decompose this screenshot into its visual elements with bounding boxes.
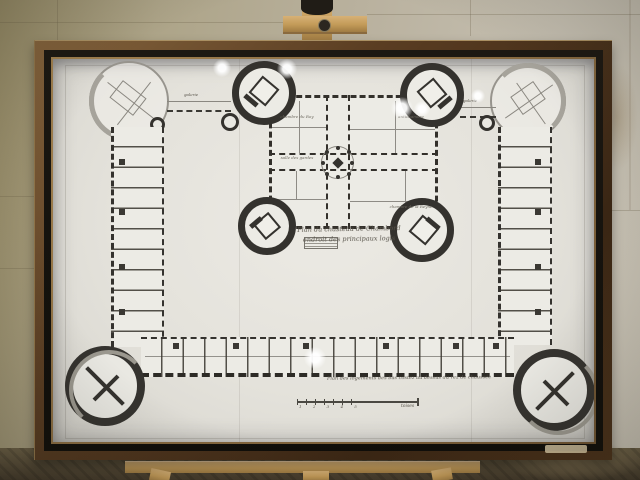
picture-frame: galerie galerie — [34, 40, 612, 460]
chimney-block — [119, 309, 125, 315]
chimney-block — [535, 209, 541, 215]
stair-column — [325, 150, 329, 154]
stair-core — [332, 157, 343, 168]
plan-tower-bottomright — [513, 349, 594, 431]
chimney-block — [535, 159, 541, 165]
keep-partition — [296, 171, 297, 199]
chimney-block — [173, 343, 179, 349]
plan-tower-bottomleft — [65, 346, 145, 426]
scale-label: toises — [401, 404, 414, 409]
wall-mortar-joint — [367, 14, 640, 15]
glass-glare — [471, 89, 485, 103]
tower-shading-arc — [517, 353, 594, 435]
frame-inner-black-band: galerie galerie — [44, 50, 603, 451]
photo-scene: galerie galerie — [0, 0, 640, 480]
stair-column — [336, 175, 340, 179]
caption-center-line2: endroit des principaux logis — [289, 234, 409, 246]
wall-mortar-joint — [0, 268, 34, 269]
keep-partition — [350, 129, 435, 130]
plan-central-stair — [321, 146, 354, 179]
frame-damage-patch — [545, 445, 587, 453]
caption-center: Plan du chasteau de Chambord endroit des… — [289, 224, 409, 246]
chimney-block — [535, 309, 541, 315]
scale-end-tick — [417, 398, 419, 406]
gallery-label-left: galerie — [184, 92, 198, 97]
chimney-block — [383, 343, 389, 349]
glass-glare — [391, 97, 413, 119]
paper-crease — [239, 59, 240, 442]
wall-mortar-joint — [0, 22, 283, 23]
south-wing-inner-line — [145, 356, 510, 357]
stair-column — [325, 172, 329, 176]
wall-mortar-joint — [470, 0, 471, 36]
scale-numbers: 1 2 3 4 5 — [299, 404, 362, 409]
plan-east-wing — [498, 127, 552, 345]
tower-shading-arc — [69, 350, 149, 430]
chimney-block — [535, 264, 541, 270]
scale-bar: 1 2 3 4 5 toises — [297, 397, 419, 409]
plan-keep-tower-bottomleft — [238, 197, 296, 255]
plan-turret — [479, 115, 495, 131]
easel-clamp-knob — [301, 0, 333, 15]
tower-room — [409, 215, 440, 246]
glass-glare — [304, 347, 326, 369]
chimney-block — [233, 343, 239, 349]
chimney-block — [119, 159, 125, 165]
keep-partition — [272, 127, 326, 128]
stair-column — [336, 146, 340, 150]
stair-column — [347, 150, 351, 154]
frame-gilt-lip: galerie galerie — [51, 57, 596, 444]
plan-gallery-left — [167, 101, 231, 112]
plan-turret — [221, 113, 239, 131]
glass-glare — [414, 101, 430, 117]
stair-column — [347, 172, 351, 176]
chimney-block — [493, 343, 499, 349]
chimney-block — [453, 343, 459, 349]
easel-leg-right — [431, 467, 453, 480]
drawing-paper: galerie galerie — [53, 59, 594, 442]
stair-column — [321, 161, 325, 165]
easel-badge — [318, 19, 331, 32]
chimney-block — [119, 264, 125, 270]
glass-glare — [213, 59, 231, 77]
chimney-block — [119, 209, 125, 215]
tower-room — [253, 212, 281, 240]
room-label: chambre du Roy — [273, 115, 321, 119]
easel-leg-center — [303, 471, 329, 480]
stair-column — [350, 161, 354, 165]
wall-mortar-joint — [0, 196, 34, 197]
glass-glare — [277, 59, 297, 79]
room-label: salle des gardes — [271, 156, 323, 160]
room-label: chambre de la Reyne — [385, 205, 437, 209]
wall-mortar-joint — [57, 0, 58, 42]
wall-mortar-joint — [612, 210, 640, 211]
